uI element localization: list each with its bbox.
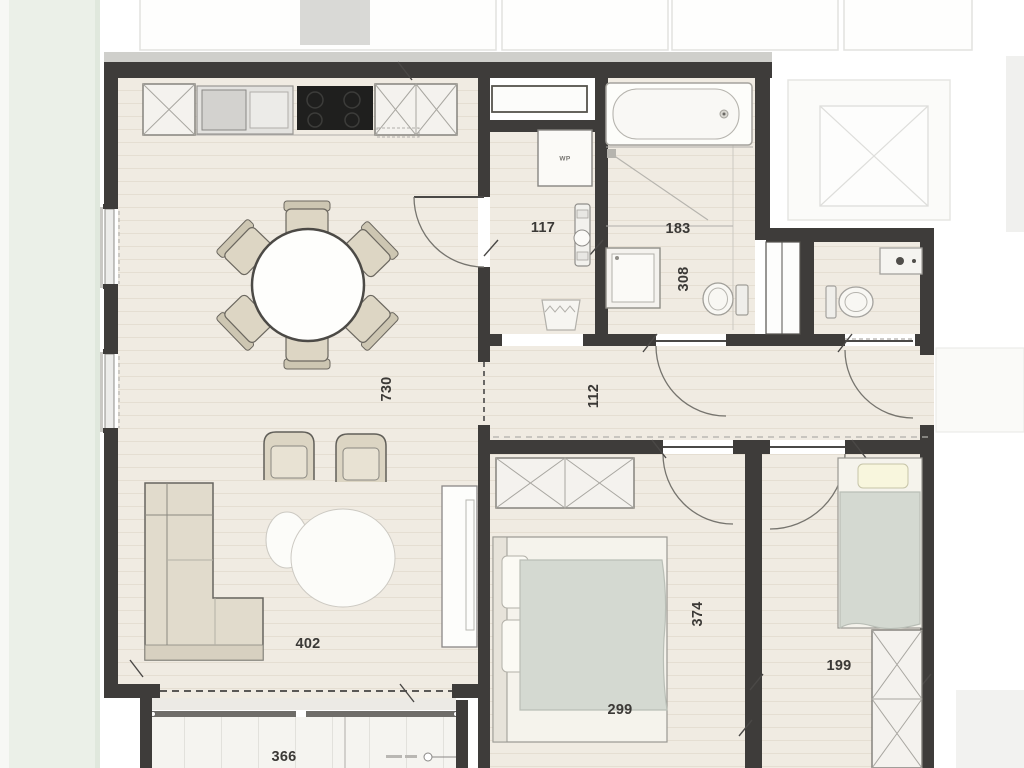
cooktop (297, 86, 373, 130)
laundry-basket (542, 300, 580, 330)
dim-bathroom-length: 308 (676, 266, 692, 291)
kitchen-sink (197, 86, 293, 134)
wardrobe-main (496, 458, 634, 508)
dim-bedroom-main-width: 299 (607, 702, 632, 718)
floor-plan-drawing (0, 0, 1024, 768)
dim-bedroom-main-length: 374 (690, 601, 706, 626)
radiator (574, 204, 590, 266)
bathtub (606, 83, 752, 145)
double-bed (493, 537, 667, 742)
dining-table (252, 229, 364, 341)
garden-strip (0, 0, 100, 768)
washbasin (606, 248, 660, 308)
neighbor-unit-top (140, 0, 972, 50)
wc-basin (880, 248, 922, 274)
bed-blanket (520, 560, 667, 710)
dim-living-length: 730 (379, 376, 395, 401)
window-living-upper (100, 204, 119, 289)
single-bed (838, 458, 922, 629)
wc-toilet (826, 286, 873, 318)
kitchen-cabinets-right (375, 84, 457, 135)
floor-plan: 730 402 366 117 183 308 112 374 299 199 … (0, 0, 1024, 768)
built-in-cabinet (492, 86, 587, 112)
bed-blanket (840, 492, 920, 629)
kitchen-tall-cabinet (143, 84, 195, 135)
dim-bathroom-width: 183 (665, 221, 690, 237)
installation-shaft (766, 242, 800, 334)
window-living-lower (100, 349, 119, 433)
balcony (150, 698, 459, 768)
dim-bedroom-second-width: 199 (826, 658, 851, 674)
wardrobe-second (872, 630, 922, 768)
dim-living-width: 402 (295, 636, 320, 652)
armchair (336, 434, 386, 482)
common-corridor-right (936, 348, 1024, 768)
armchair (264, 432, 314, 480)
dim-utility-width: 117 (531, 220, 555, 236)
hallway-floor (478, 346, 934, 440)
dim-terrace-width: 366 (271, 749, 296, 765)
toilet (703, 283, 748, 315)
kitchen (143, 84, 457, 137)
dim-hallway-width: 112 (586, 384, 602, 408)
tv-cabinet (442, 486, 477, 647)
elevator-shaft (788, 56, 1024, 232)
heat-pump-label: WP (559, 156, 570, 163)
